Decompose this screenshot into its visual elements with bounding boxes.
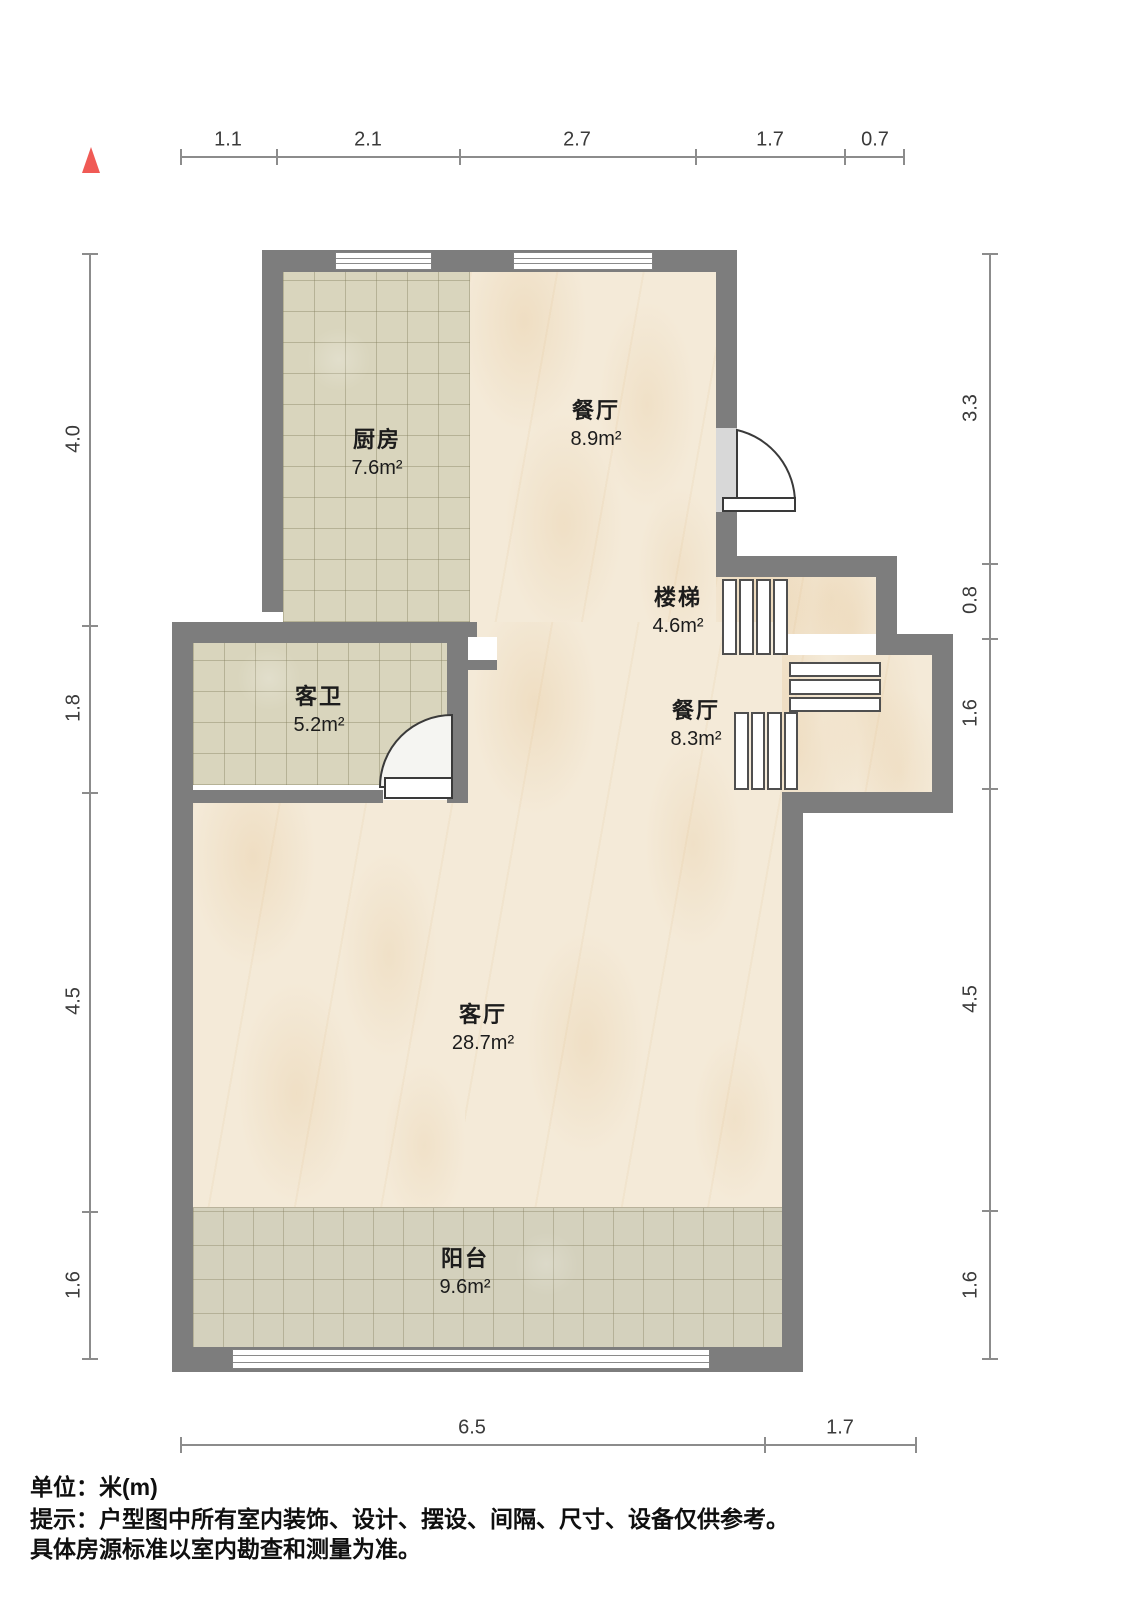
stair-step	[784, 712, 799, 790]
window-top-right	[513, 252, 653, 270]
room-name: 厨房	[351, 427, 402, 453]
window-pane-line	[514, 263, 652, 264]
room-label-dining-upper: 餐厅 8.9m²	[570, 398, 621, 454]
room-label-guest-bath: 客卫 5.2m²	[293, 684, 344, 740]
window-pane-line	[336, 258, 431, 259]
room-area: 7.6m²	[351, 453, 402, 483]
dim-label-right: 3.3	[960, 394, 983, 422]
stair-step	[739, 579, 754, 655]
dim-label-left: 4.0	[63, 425, 86, 453]
dim-label-top: 1.7	[756, 129, 784, 152]
stair-step	[756, 579, 771, 655]
footer-tip-line2: 具体房源标准以室内勘查和测量为准。	[30, 1530, 421, 1564]
window-pane-line	[233, 1362, 709, 1363]
dim-tick	[82, 792, 98, 794]
dim-label-left: 1.8	[63, 694, 86, 722]
wall-opening-notch	[468, 637, 497, 660]
wall-bath-bottom	[193, 790, 383, 803]
dim-label-bottom: 6.5	[458, 1417, 486, 1440]
stair-step	[789, 662, 881, 677]
dim-tick	[915, 1437, 917, 1453]
living-floor	[193, 800, 465, 1207]
dim-line-bottom	[180, 1444, 917, 1446]
wall-bath-top	[172, 622, 477, 643]
dim-label-top: 0.7	[861, 129, 889, 152]
dim-tick	[982, 253, 998, 255]
room-label-balcony: 阳台 9.6m²	[439, 1246, 490, 1302]
room-label-kitchen: 厨房 7.6m²	[351, 427, 402, 483]
dim-label-top: 2.7	[563, 129, 591, 152]
window-pane-line	[233, 1355, 709, 1356]
dim-tick	[982, 638, 998, 640]
stair-step	[734, 712, 749, 790]
dim-tick	[844, 149, 846, 165]
dim-tick	[82, 1211, 98, 1213]
room-area: 4.6m²	[652, 611, 703, 641]
room-name: 客厅	[452, 1002, 514, 1028]
hall-floor	[465, 622, 782, 1207]
stair-step	[751, 712, 766, 790]
stair-lower-run	[734, 712, 798, 790]
dim-tick	[180, 149, 182, 165]
dim-line-right	[989, 253, 991, 1360]
room-name: 阳台	[439, 1246, 490, 1272]
room-name: 餐厅	[570, 398, 621, 424]
room-area: 28.7m²	[452, 1028, 514, 1058]
dim-tick	[180, 1437, 182, 1453]
footer-tip-line1: 提示：户型图中所有室内装饰、设计、摆设、间隔、尺寸、设备仅供参考。	[30, 1500, 789, 1534]
room-label-dining-lower: 餐厅 8.3m²	[670, 698, 721, 754]
wall-stub	[468, 660, 497, 670]
dim-tick	[695, 149, 697, 165]
room-area: 5.2m²	[293, 710, 344, 740]
dim-label-left: 4.5	[63, 987, 86, 1015]
room-name: 楼梯	[652, 585, 703, 611]
dim-tick	[903, 149, 905, 165]
wall-dining-bottom	[782, 792, 953, 813]
dim-label-top: 2.1	[354, 129, 382, 152]
footer-unit-note: 单位：米(m)	[30, 1468, 158, 1502]
room-label-living: 客厅 28.7m²	[452, 1002, 514, 1058]
stair-step	[789, 697, 881, 712]
window-top-left	[335, 252, 432, 270]
dim-label-right: 1.6	[960, 1271, 983, 1299]
window-pane-line	[336, 263, 431, 264]
wall-living-right	[782, 792, 803, 1372]
wall-left	[172, 622, 193, 1372]
dim-tick	[276, 149, 278, 165]
dim-tick	[982, 563, 998, 565]
dim-label-right: 4.5	[960, 985, 983, 1013]
bath-door-icon	[376, 711, 458, 801]
room-area: 8.3m²	[670, 724, 721, 754]
dim-tick	[982, 1358, 998, 1360]
room-label-stairs: 楼梯 4.6m²	[652, 585, 703, 641]
wall-top	[262, 250, 737, 272]
room-name: 客卫	[293, 684, 344, 710]
dim-label-left: 1.6	[63, 1271, 86, 1299]
stair-step	[767, 712, 782, 790]
floorplan-canvas: 厨房 7.6m² 餐厅 8.9m² 楼梯 4.6m² 餐厅 8.3m² 客卫 5…	[0, 0, 1125, 1623]
dim-line-left	[89, 253, 91, 1360]
room-area: 9.6m²	[439, 1272, 490, 1302]
stair-step	[773, 579, 788, 655]
room-area: 8.9m²	[570, 424, 621, 454]
dim-label-top: 1.1	[214, 129, 242, 152]
dim-tick	[982, 788, 998, 790]
wall-entry-upper	[716, 250, 737, 428]
dim-tick	[982, 1210, 998, 1212]
dim-label-bottom: 1.7	[826, 1417, 854, 1440]
window-balcony	[232, 1349, 710, 1369]
entry-door-icon	[714, 424, 814, 516]
north-triangle-icon	[82, 147, 100, 173]
stair-step	[789, 679, 881, 694]
wall-far-right	[932, 634, 953, 813]
wall-kitchen-left	[262, 250, 283, 612]
wall-upper-right-h	[716, 556, 897, 577]
dim-tick	[82, 253, 98, 255]
dim-tick	[459, 149, 461, 165]
dim-tick	[764, 1437, 766, 1453]
dim-tick	[82, 625, 98, 627]
dim-line-top	[180, 156, 905, 158]
room-name: 餐厅	[670, 698, 721, 724]
dim-label-right: 1.6	[960, 699, 983, 727]
stair-step	[722, 579, 737, 655]
window-pane-line	[514, 258, 652, 259]
dim-tick	[82, 1358, 98, 1360]
stair-landing-run	[789, 662, 881, 712]
stair-upper-run	[722, 579, 788, 655]
dim-label-right: 0.8	[960, 586, 983, 614]
